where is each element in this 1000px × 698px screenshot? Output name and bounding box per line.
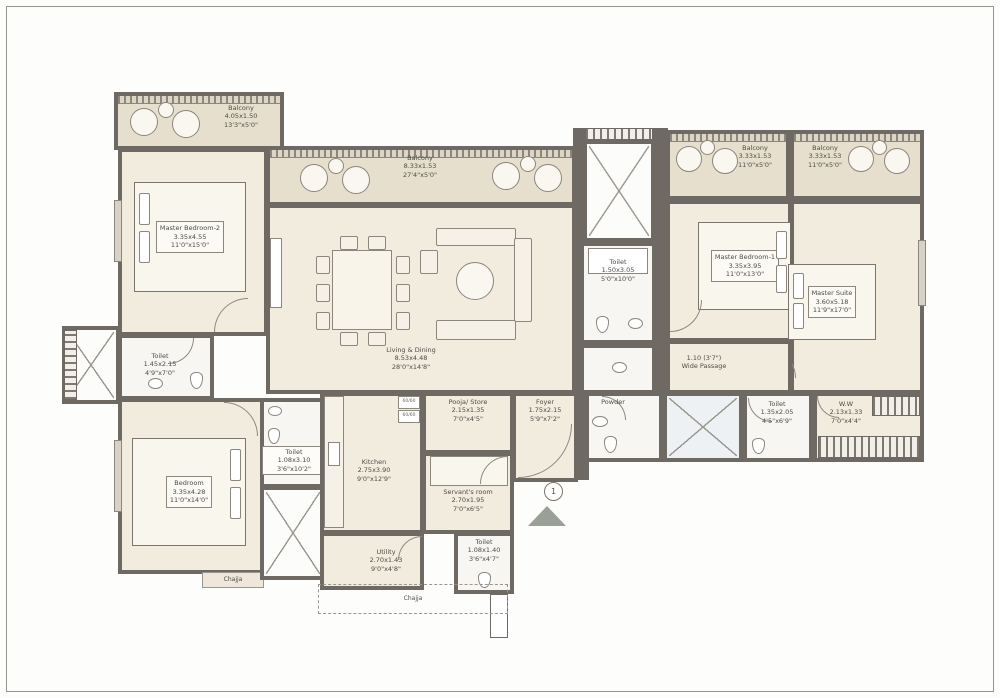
label-master-bedroom-2: Master Bedroom-2 3.35x4.55 11'0"x15'0" (156, 221, 224, 252)
label-servants-room: Servant's room 2.70x1.95 7'0"x6'5" (420, 488, 516, 513)
balcony-seat (328, 158, 344, 174)
label-balcony-middle: Balcony 8.33x1.53 27'4"x5'0" (372, 154, 468, 179)
entry-arrow (528, 506, 566, 526)
room-dim-ft: 7'0"x4'5" (426, 415, 510, 423)
kitchen-hob: 60/60 (398, 396, 420, 409)
room-name: W.W (820, 400, 872, 408)
pillow (230, 487, 241, 519)
room-name: Pooja/ Store (426, 398, 510, 406)
room-dim-m: 3.33x1.53 (722, 152, 788, 160)
label-kitchen: Kitchen 2.75x3.90 9'0"x12'9" (332, 458, 416, 483)
label-chajja-left: Chajja (224, 576, 243, 584)
armchair (420, 250, 438, 274)
room-dim-m: 1.75x2.15 (514, 406, 576, 414)
pillow (139, 231, 150, 263)
room-dim-ft: 4'5"x6'9" (746, 417, 808, 425)
sofa (436, 320, 516, 340)
wardrobe-shelves (818, 436, 920, 458)
label-bedroom: Bedroom 3.35x4.28 11'0"x14'0" (166, 476, 212, 507)
pillow (793, 273, 804, 299)
chair (396, 284, 410, 302)
chajja-left: Chajja (202, 572, 264, 588)
stair-treads (64, 330, 77, 400)
label-utility: Utility 2.70x1.43 9'0"x4'8" (346, 548, 426, 573)
passage-dim: 1.10 (3'7") (652, 354, 756, 362)
room-name: Toilet (746, 400, 808, 408)
balcony-seat (300, 164, 328, 192)
room-dim-ft: 27'4"x5'0" (372, 171, 468, 179)
room-name: Wide Passage (652, 362, 756, 370)
kitchen-hob: 60/60 (398, 410, 420, 423)
label-living-dining: Living & Dining 8.53x4.48 28'0"x14'8" (356, 346, 466, 371)
room-dim-ft: 11'0"x5'0" (722, 161, 788, 169)
entry-number-marker: 1 (544, 482, 563, 501)
room-dim-m: 2.15x1.35 (426, 406, 510, 414)
room-dim-m: 4.05x1.50 (196, 112, 286, 120)
room-dim-m: 2.70x1.95 (420, 496, 516, 504)
balcony-seat (534, 164, 562, 192)
chair (368, 332, 386, 346)
room-dim-ft: 5'9"x7'2" (514, 415, 576, 423)
label-toilet-servant: Toilet 1.08x1.40 3'6"x4'7" (458, 538, 510, 563)
room-dim-ft: 5'0"x10'0" (586, 275, 650, 283)
bed-master-bedroom-1: Master Bedroom-1 3.35x3.95 11'0"x13'0" (698, 222, 792, 310)
window (114, 440, 122, 512)
room-name: Living & Dining (356, 346, 466, 354)
chair (368, 236, 386, 250)
label-walk-in-wardrobe: W.W 2.13x1.33 7'0"x4'4" (820, 400, 872, 425)
room-dim-m: 1.35x2.05 (746, 408, 808, 416)
room-dim-m: 3.33x1.53 (794, 152, 856, 160)
label-powder: Powder (590, 398, 636, 406)
room-dim-ft: 9'0"x4'8" (346, 565, 426, 573)
room-dim-m: 1.08x1.40 (458, 546, 510, 554)
lift-shaft-core (583, 140, 655, 242)
balcony-seat (520, 156, 536, 172)
room-dim-ft: 7'0"x6'5" (420, 505, 516, 513)
chajja-middle: Chajja (318, 584, 508, 614)
balcony-railing (118, 96, 280, 104)
chair (316, 312, 330, 330)
label-wide-passage: 1.10 (3'7") Wide Passage (652, 354, 756, 371)
room-name: Toilet (458, 538, 510, 546)
room-name: Balcony (196, 104, 286, 112)
chair (340, 236, 358, 250)
balcony-seat (158, 102, 174, 118)
room-dim-ft: 7'0"x4'4" (820, 417, 872, 425)
label-foyer: Foyer 1.75x2.15 5'9"x7'2" (514, 398, 576, 423)
room-name: Master Suite (812, 289, 853, 297)
room-name: Toilet (126, 352, 194, 360)
pillow (139, 193, 150, 225)
balcony-seat (492, 162, 520, 190)
label-balcony-right-2: Balcony 3.33x1.53 11'0"x5'0" (794, 144, 856, 169)
room-toilet-master-1 (663, 392, 743, 462)
room-dim-ft: 9'0"x12'9" (332, 475, 416, 483)
wardrobe-shelves (872, 396, 920, 416)
label-toilet-left: Toilet 1.45x2.15 4'9"x7'0" (126, 352, 194, 377)
bed-master-suite: Master Suite 3.60x5.18 11'9"x17'0" (788, 264, 876, 340)
chair (316, 256, 330, 274)
coffee-table (456, 262, 494, 300)
label-pooja-store: Pooja/ Store 2.15x1.35 7'0"x4'5" (426, 398, 510, 423)
room-name: Master Bedroom-2 (160, 224, 220, 232)
floor-plan: Balcony 4.05x1.50 13'3"x5'0" Master Bedr… (0, 0, 1000, 698)
sofa (436, 228, 516, 246)
room-name: Toilet (586, 258, 650, 266)
balcony-seat (342, 166, 370, 194)
room-dim-m: 3.35x3.95 (715, 262, 775, 270)
balcony-seat (676, 146, 702, 172)
room-dim-m: 3.35x4.28 (170, 488, 208, 496)
room-dim-ft: 4'9"x7'0" (126, 369, 194, 377)
label-balcony-top-left: Balcony 4.05x1.50 13'3"x5'0" (196, 104, 286, 129)
room-dim-m: 1.50x3.05 (586, 266, 650, 274)
washbasin (148, 378, 163, 389)
room-dim-ft: 3'6"x4'7" (458, 555, 510, 563)
balcony-seat (700, 140, 715, 155)
room-dim-ft: 3'6"x10'2" (264, 465, 324, 473)
chair (396, 256, 410, 274)
dining-table (332, 250, 392, 330)
room-dim-ft: 11'9"x17'0" (812, 306, 853, 314)
room-dim-ft: 11'0"x5'0" (794, 161, 856, 169)
room-dim-m: 2.13x1.33 (820, 408, 872, 416)
room-dim-m: 3.35x4.55 (160, 233, 220, 241)
room-name: Balcony (722, 144, 788, 152)
entry-number: 1 (551, 487, 556, 496)
label-toilet-center: Toilet 1.50x3.05 5'0"x10'0" (586, 258, 650, 283)
room-dim-m: 2.75x3.90 (332, 466, 416, 474)
wardrobe-shaft (260, 486, 326, 580)
room-dim-ft: 11'0"x14'0" (170, 496, 208, 504)
room-dim-m: 8.53x4.48 (356, 354, 466, 362)
label-toilet-right: Toilet 1.35x2.05 4'5"x6'9" (746, 400, 808, 425)
washbasin (628, 318, 643, 329)
room-name: Foyer (514, 398, 576, 406)
room-name: Balcony (794, 144, 856, 152)
label-toilet-bedroom: Toilet 1.08x3.10 3'6"x10'2" (262, 446, 326, 475)
room-name: Kitchen (332, 458, 416, 466)
room-name: Master Bedroom-1 (715, 253, 775, 261)
pillow (793, 303, 804, 329)
chair (340, 332, 358, 346)
room-dim-m: 8.33x1.53 (372, 162, 468, 170)
room-dim-ft: 11'0"x13'0" (715, 270, 775, 278)
window (918, 240, 926, 306)
balcony-seat (884, 148, 910, 174)
pillow (776, 231, 787, 259)
chair (316, 284, 330, 302)
tv-unit (270, 238, 282, 308)
chair (396, 312, 410, 330)
balcony-railing (794, 134, 920, 142)
label-master-bedroom-1: Master Bedroom-1 3.35x3.95 11'0"x13'0" (711, 250, 779, 281)
sofa (514, 238, 532, 322)
room-dim-ft: 11'0"x15'0" (160, 241, 220, 249)
room-name: Utility (346, 548, 426, 556)
bed-bedroom: Bedroom 3.35x4.28 11'0"x14'0" (132, 438, 246, 546)
pillow (776, 265, 787, 293)
room-name: Toilet (264, 448, 324, 456)
balcony-seat (872, 140, 887, 155)
label-balcony-right-1: Balcony 3.33x1.53 11'0"x5'0" (722, 144, 788, 169)
bed-master-bedroom-2: Master Bedroom-2 3.35x4.55 11'0"x15'0" (134, 182, 246, 292)
room-dim-m: 1.08x3.10 (264, 456, 324, 464)
room-name: Powder (590, 398, 636, 406)
label-chajja-middle: Chajja (404, 595, 423, 603)
pillow (230, 449, 241, 481)
washbasin (612, 362, 627, 373)
room-name: Balcony (372, 154, 468, 162)
label-master-suite: Master Suite 3.60x5.18 11'9"x17'0" (808, 286, 857, 317)
room-name: Servant's room (420, 488, 516, 496)
balcony-railing (670, 134, 786, 142)
stair-treads-core (585, 128, 653, 140)
washbasin (268, 406, 282, 416)
room-dim-m: 2.70x1.43 (346, 556, 426, 564)
room-name: Bedroom (170, 479, 208, 487)
window (114, 200, 122, 262)
balcony-seat (130, 108, 158, 136)
room-dim-ft: 13'3"x5'0" (196, 121, 286, 129)
room-dim-ft: 28'0"x14'8" (356, 363, 466, 371)
room-dim-m: 1.45x2.15 (126, 360, 194, 368)
room-dim-m: 3.60x5.18 (812, 298, 853, 306)
